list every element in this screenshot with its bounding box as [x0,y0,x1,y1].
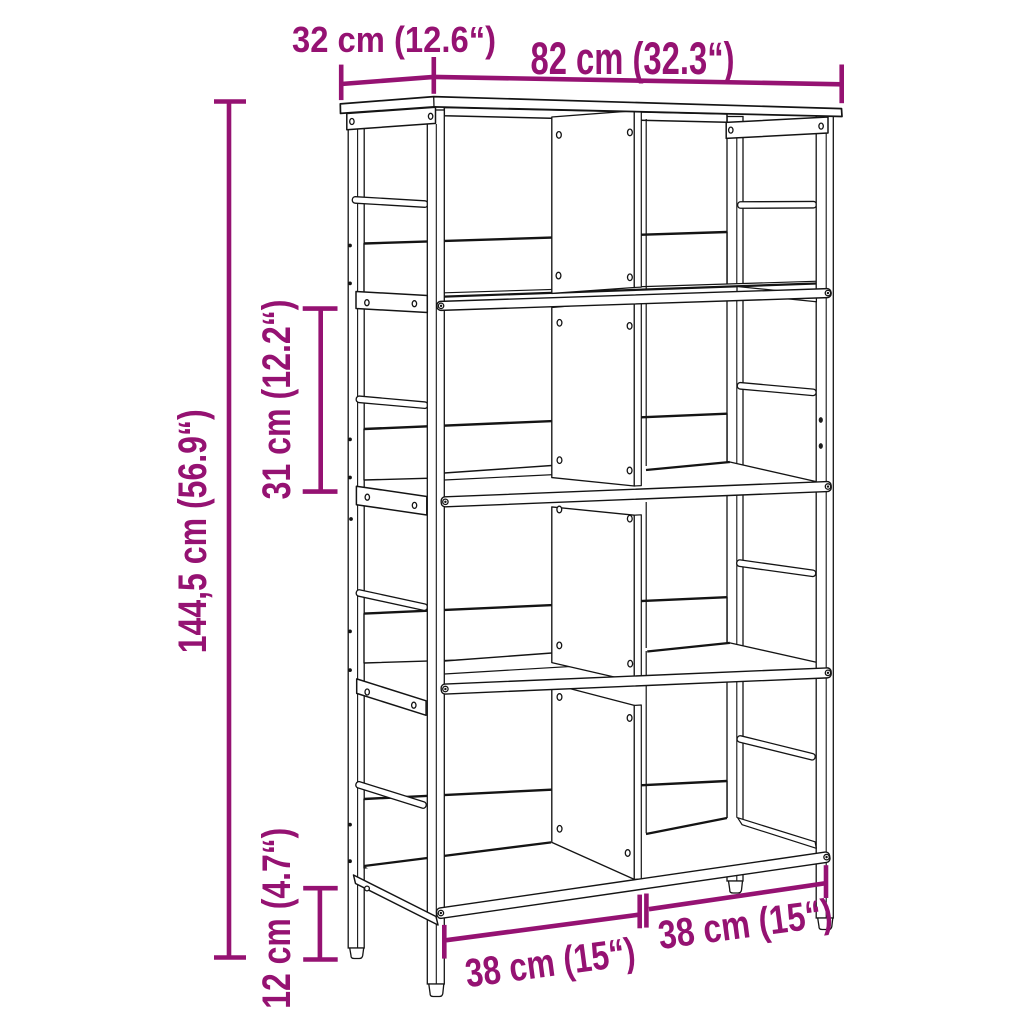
svg-text:32 cm (12.6“): 32 cm (12.6“) [292,19,496,60]
svg-text:12 cm (4.7“): 12 cm (4.7“) [255,828,299,1009]
svg-text:144,5 cm (56.9“): 144,5 cm (56.9“) [171,409,215,653]
svg-text:31 cm (12.2“): 31 cm (12.2“) [255,300,299,500]
svg-text:82 cm (32.3“): 82 cm (32.3“) [531,33,735,84]
